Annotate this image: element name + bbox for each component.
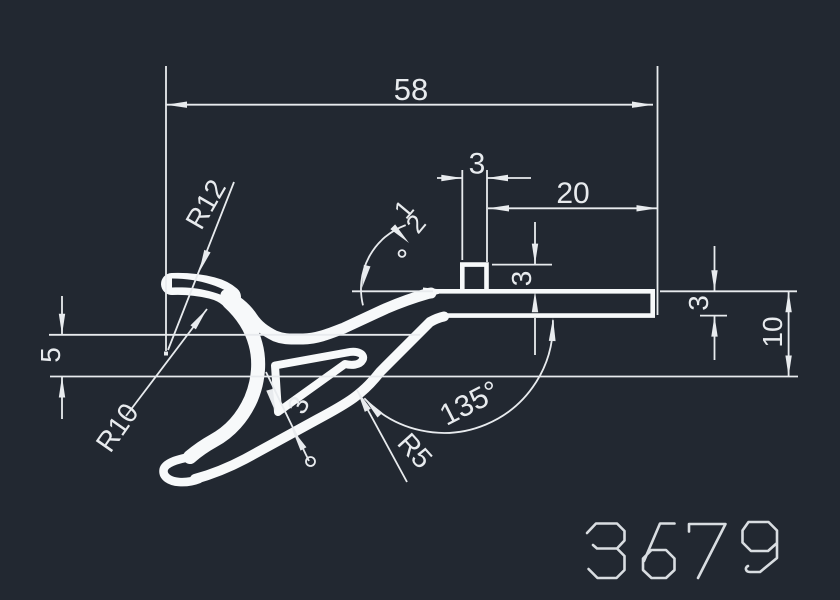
svg-text:5: 5 (35, 347, 66, 363)
svg-text:10: 10 (757, 316, 788, 347)
svg-text:20: 20 (556, 177, 589, 210)
svg-text:3: 3 (469, 148, 486, 181)
svg-text:3: 3 (506, 271, 537, 287)
svg-text:58: 58 (394, 72, 428, 107)
svg-text:3: 3 (683, 295, 714, 311)
